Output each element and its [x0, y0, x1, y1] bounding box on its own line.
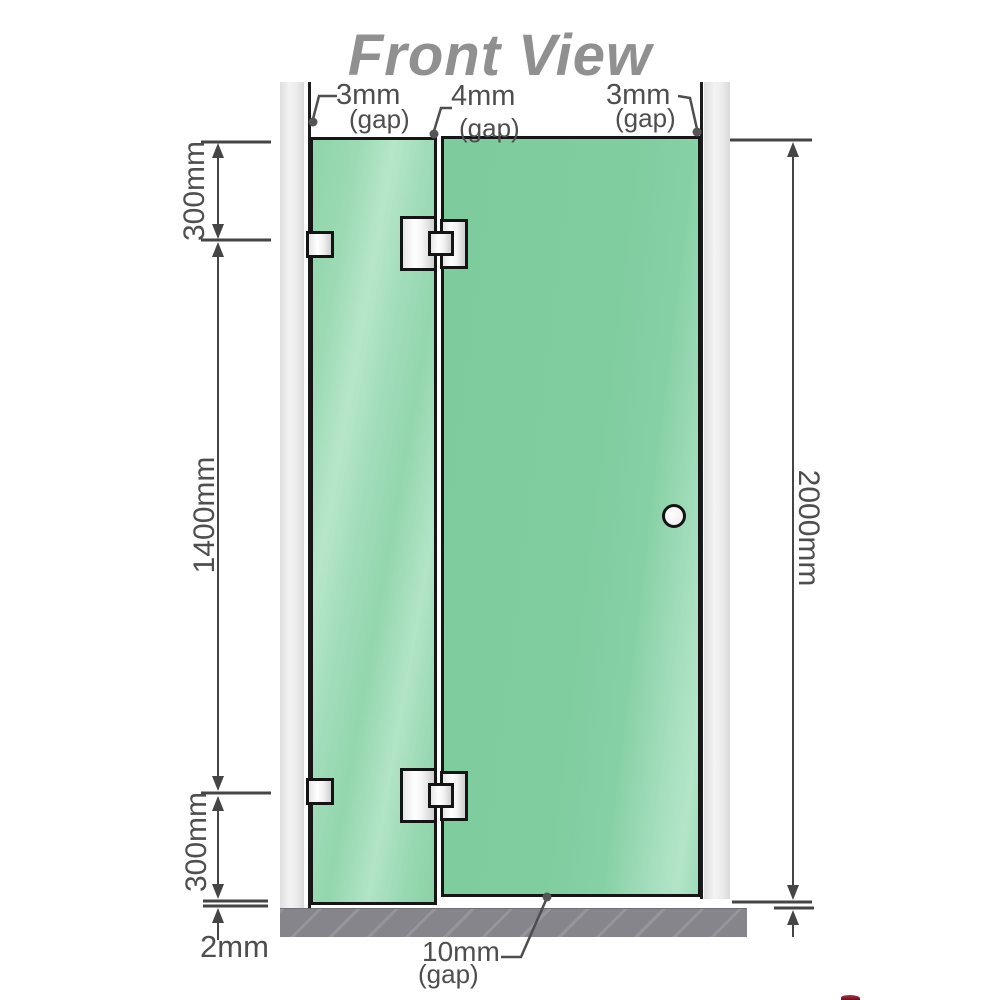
front-view-diagram: Front View	[0, 0, 1000, 1000]
label-gap-top-middle-value: 4mm	[451, 82, 515, 111]
label-gap-top-right-qualifier: (gap)	[615, 105, 676, 131]
label-gap-top-left-qualifier: (gap)	[349, 106, 410, 132]
label-left-segment-middle: 1400mm	[190, 457, 220, 574]
label-left-segment-top: 300mm	[180, 141, 210, 241]
floor-bar	[280, 908, 747, 937]
label-left-segment-bottom: 300mm	[182, 792, 212, 892]
watermark-fragment	[841, 995, 860, 1000]
bottom-hinge-tab	[428, 783, 454, 808]
bottom-wall-bracket	[306, 778, 334, 805]
label-bottom-door-gap-qualifier: (gap)	[418, 961, 479, 987]
right-wall-channel	[704, 82, 730, 899]
label-bottom-floor-gap: 2mm	[200, 931, 269, 962]
label-gap-top-middle-qualifier: (gap)	[459, 115, 520, 141]
top-wall-bracket	[306, 231, 334, 258]
top-hinge-tab	[428, 231, 454, 256]
left-wall-channel	[280, 82, 304, 908]
label-right-overall-height: 2000mm	[793, 470, 823, 587]
page-title: Front View	[0, 22, 1000, 89]
door-handle-knob	[662, 504, 686, 528]
